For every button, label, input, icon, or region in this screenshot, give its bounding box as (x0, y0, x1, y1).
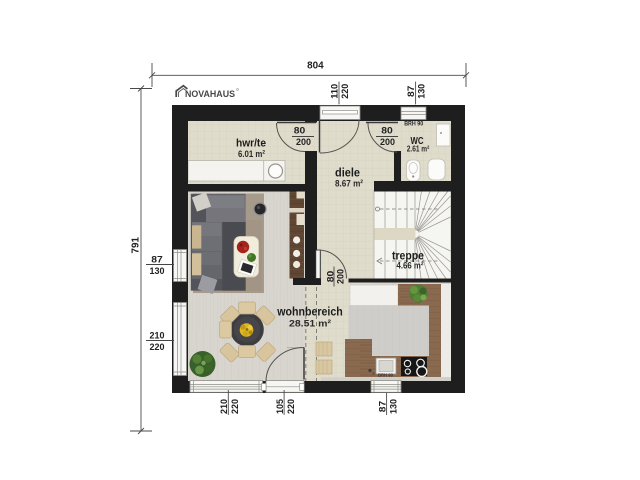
svg-text:NOVAHAUS: NOVAHAUS (185, 89, 235, 99)
svg-text:220: 220 (230, 399, 241, 414)
svg-text:80: 80 (294, 126, 306, 137)
svg-text:200: 200 (380, 137, 395, 148)
svg-text:6.01 m²: 6.01 m² (238, 149, 265, 160)
svg-text:28.51 m²: 28.51 m² (289, 319, 331, 330)
svg-text:220: 220 (286, 399, 297, 414)
svg-text:BRH 90: BRH 90 (378, 373, 394, 378)
svg-text:130: 130 (388, 399, 399, 414)
svg-text:87: 87 (151, 255, 163, 266)
svg-text:220: 220 (150, 342, 165, 353)
svg-text:2.61 m²: 2.61 m² (407, 145, 430, 154)
svg-text:BRH 90: BRH 90 (404, 121, 423, 128)
svg-text:220: 220 (340, 84, 351, 99)
svg-text:130: 130 (150, 266, 165, 277)
svg-text:4.66 m²: 4.66 m² (397, 261, 424, 272)
svg-text:hwr/te: hwr/te (236, 138, 266, 150)
svg-text:791: 791 (129, 237, 141, 254)
svg-text:wohnbereich: wohnbereich (276, 307, 342, 319)
svg-text:200: 200 (296, 137, 311, 148)
svg-text:804: 804 (307, 59, 324, 71)
svg-text:80: 80 (381, 126, 393, 137)
svg-text:130: 130 (417, 84, 428, 99)
svg-text:8.67 m²: 8.67 m² (335, 179, 363, 190)
svg-text:210: 210 (150, 331, 165, 342)
svg-text:200: 200 (336, 269, 347, 284)
